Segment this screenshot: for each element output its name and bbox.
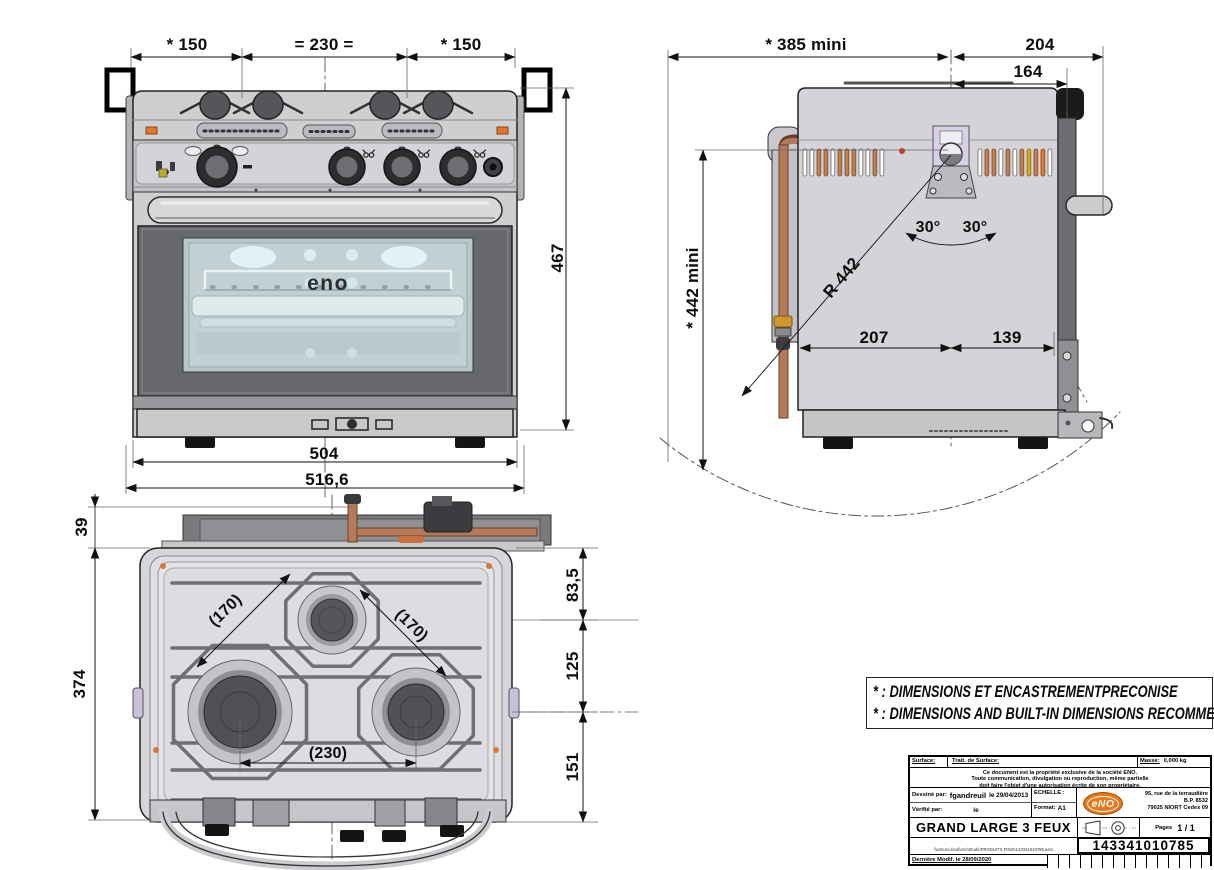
dim-swing-clearance: * 442 mini bbox=[683, 247, 703, 328]
indicator-window-right bbox=[232, 147, 248, 156]
drawn-by-value: fgandreuil bbox=[950, 791, 986, 800]
dim-139: 139 bbox=[993, 328, 1022, 348]
surface-label: Surface: bbox=[912, 758, 935, 764]
foot bbox=[823, 437, 853, 449]
side-latch-left bbox=[133, 688, 143, 718]
dim-burner-right: * 150 bbox=[441, 35, 482, 55]
dim-width-overall: 516,6 bbox=[305, 470, 349, 490]
mass-value: 0,000 kg bbox=[1164, 758, 1187, 766]
pages-label: Pages bbox=[1155, 825, 1172, 831]
company-address: 95, rue de la terraudière B.P. 8532 7902… bbox=[1127, 791, 1208, 812]
last-modified: Dernière Modif. le 28/09/2020 bbox=[912, 857, 991, 863]
dim-230-top: (230) bbox=[309, 745, 347, 763]
dim-burner-left: * 150 bbox=[167, 35, 208, 55]
format-label: Format: bbox=[1034, 805, 1056, 815]
title-block: Surface: Trait. de Surface: Masse: 0,000… bbox=[908, 755, 1212, 866]
format-value: A1 bbox=[1058, 805, 1066, 815]
dim-depth-rear: 204 bbox=[1026, 35, 1055, 55]
base-panel bbox=[137, 409, 513, 437]
checked-date: le bbox=[973, 807, 978, 814]
gas-valve bbox=[774, 316, 792, 327]
surface-treatment-label: Trait. de Surface: bbox=[952, 758, 999, 764]
dim-height: 467 bbox=[548, 244, 568, 273]
side-body bbox=[798, 88, 1058, 410]
dim-83-5: 83,5 bbox=[563, 568, 583, 602]
pages-value: 1 / 1 bbox=[1177, 823, 1195, 833]
dim-burner-spacing: = 230 = bbox=[294, 35, 353, 55]
eno-logo-text: eNO bbox=[1091, 798, 1114, 810]
note-french: * : DIMENSIONS ET ENCASTREMENTPRECONISE bbox=[873, 681, 1133, 703]
hinge-pin-right bbox=[497, 127, 508, 134]
part-number: 143341010785 bbox=[1077, 837, 1210, 854]
gas-inlet bbox=[348, 500, 357, 542]
dim-width-body: 504 bbox=[310, 444, 339, 464]
hinge-pin-left bbox=[146, 127, 157, 134]
dim-125: 125 bbox=[563, 652, 583, 681]
foot bbox=[1018, 437, 1048, 449]
angle-left: 30° bbox=[916, 219, 941, 237]
burner-knobs bbox=[329, 147, 476, 185]
side-view bbox=[660, 50, 1120, 516]
drawn-date: le 29/04/2013 bbox=[989, 792, 1028, 799]
projection-symbol bbox=[1078, 818, 1140, 837]
eno-logo: eNO bbox=[1083, 792, 1123, 815]
wall-bracket-right bbox=[524, 70, 550, 110]
indicator-dot bbox=[899, 148, 905, 154]
mass-label: Masse: bbox=[1140, 758, 1160, 766]
foot bbox=[455, 437, 485, 448]
oven-door-logo: eno bbox=[307, 272, 349, 296]
dim-depth-top: 374 bbox=[70, 670, 90, 699]
drawing-linework bbox=[0, 0, 1214, 870]
drawn-by-label: Dessiné par: bbox=[912, 792, 947, 798]
dim-rear-overhang: 39 bbox=[72, 517, 92, 536]
drawing-title: GRAND LARGE 3 FEUX bbox=[910, 818, 1078, 837]
dim-164: 164 bbox=[1014, 62, 1043, 82]
burner-cap-side bbox=[1056, 88, 1084, 120]
revision-ticks bbox=[1048, 855, 1210, 868]
technical-drawing-sheet: * 150 = 230 = * 150 467 504 516,6 eno * … bbox=[0, 0, 1214, 870]
dim-151: 151 bbox=[563, 753, 583, 782]
angle-right: 30° bbox=[963, 219, 988, 237]
indicator-window-left bbox=[185, 147, 201, 156]
checked-by-label: Vérifié par: bbox=[912, 807, 942, 813]
regulator bbox=[424, 502, 472, 532]
dim-207: 207 bbox=[860, 328, 889, 348]
file-path: \\enteno.local\enc\Etude\PRODUITS FINIS\… bbox=[934, 847, 1053, 852]
property-notice: Ce document est la propriété exclusive d… bbox=[910, 768, 1210, 787]
front-handle bbox=[148, 197, 502, 223]
handle-side bbox=[1066, 196, 1112, 215]
gas-pipe bbox=[779, 145, 788, 418]
notes-box: * : DIMENSIONS ET ENCASTREMENTPRECONISE … bbox=[866, 677, 1213, 729]
dim-depth-min: * 385 mini bbox=[765, 35, 846, 55]
scale-label: ECHELLE : bbox=[1034, 790, 1065, 796]
side-latch-right bbox=[509, 688, 519, 718]
note-english: * : DIMENSIONS AND BUILT-IN DIMENSIONS R… bbox=[873, 703, 1133, 725]
foot bbox=[185, 437, 215, 448]
